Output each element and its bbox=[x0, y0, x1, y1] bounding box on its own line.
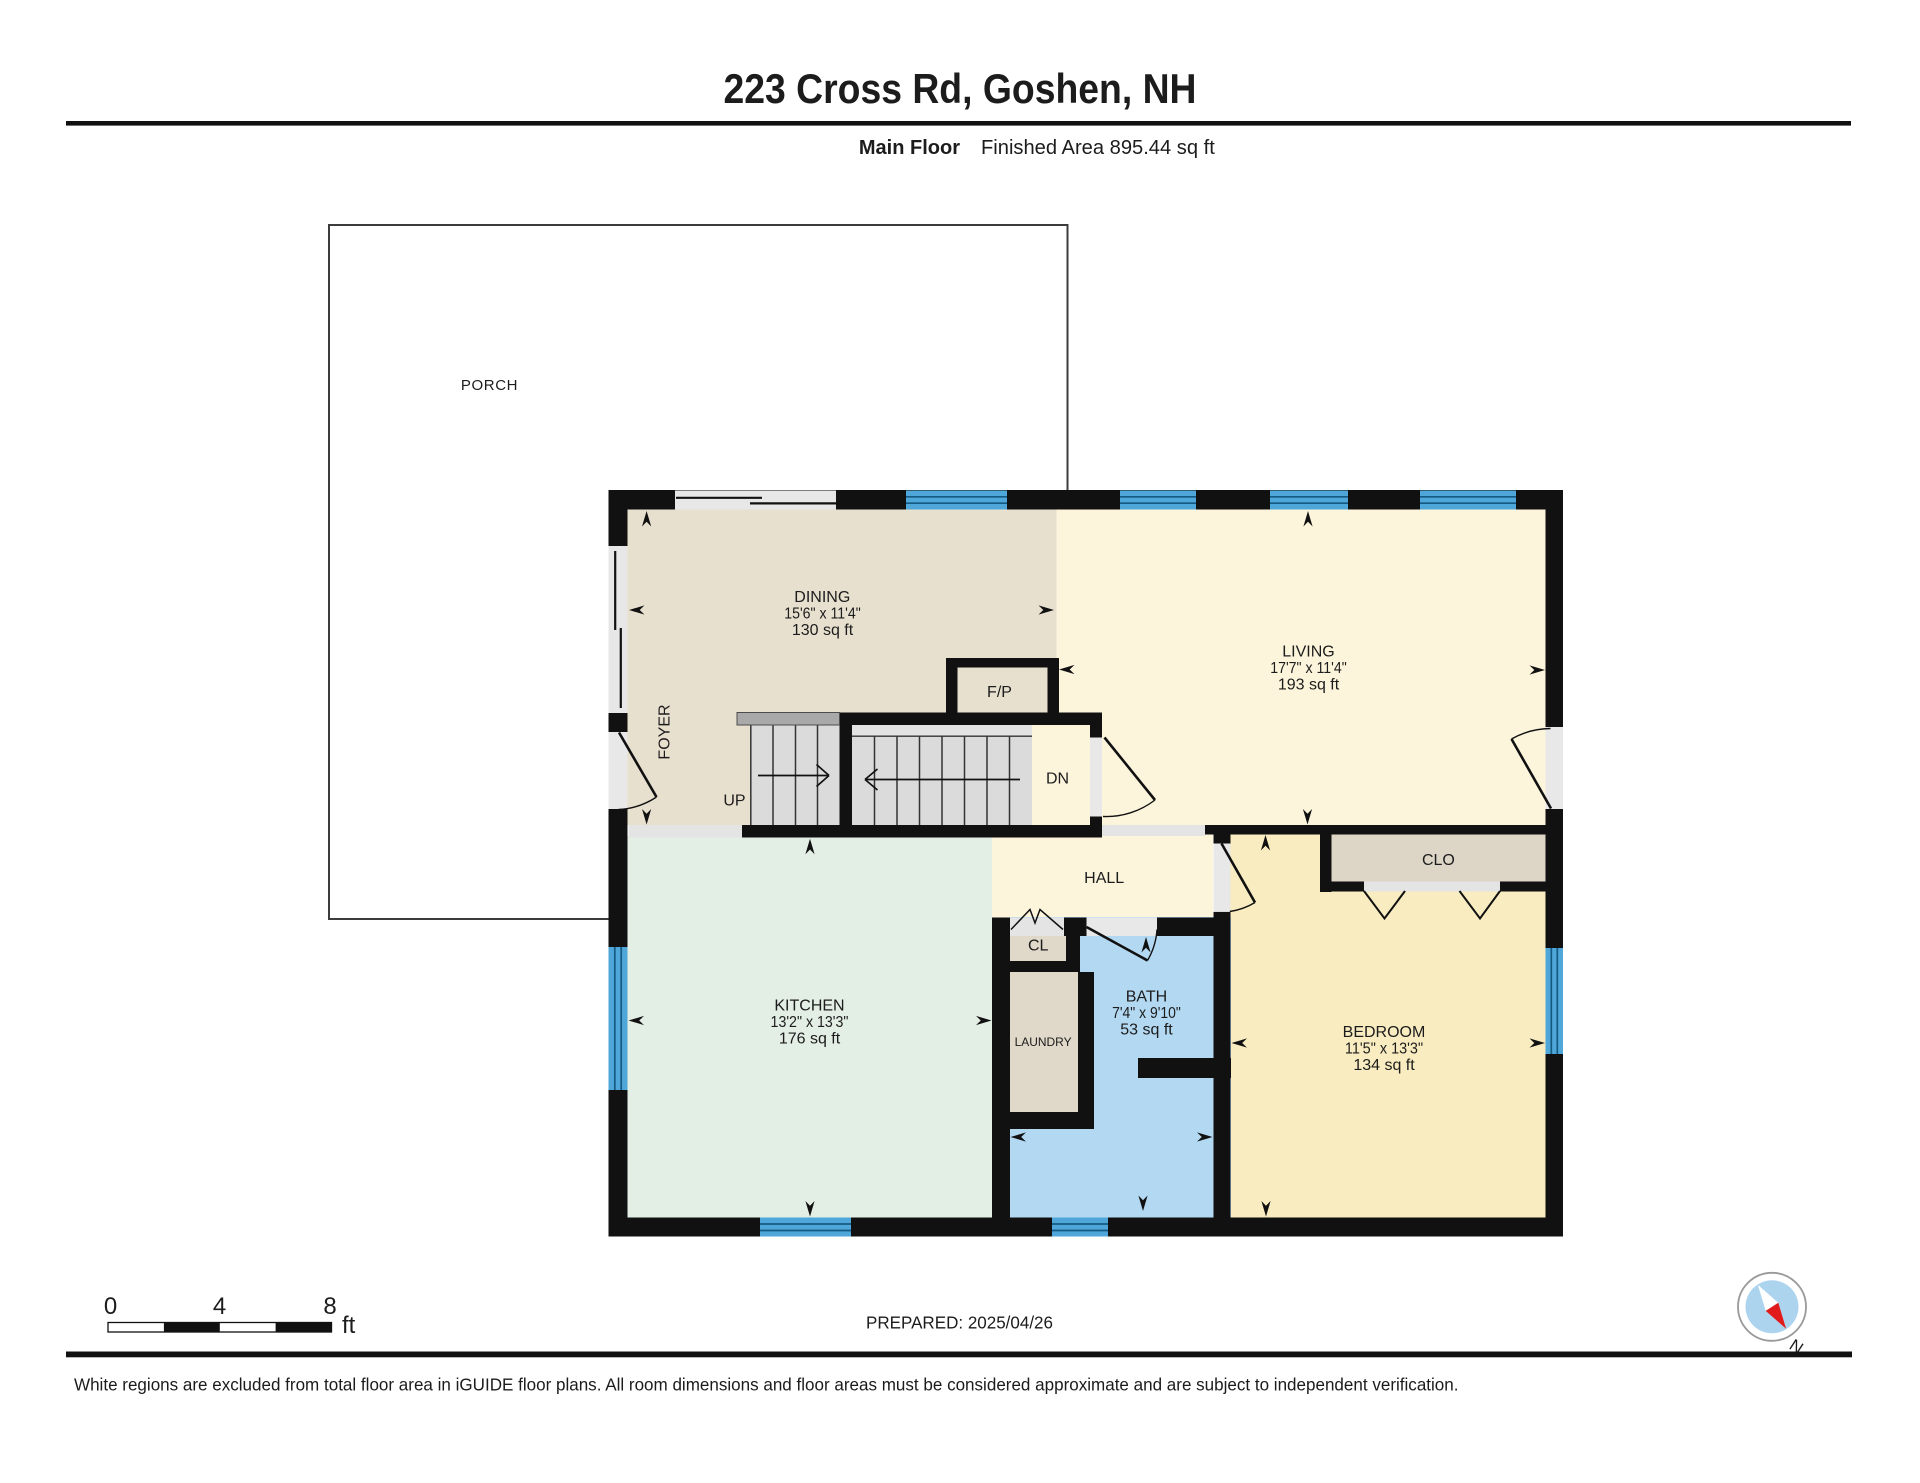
svg-text:223 Cross Rd, Goshen, NH: 223 Cross Rd, Goshen, NH bbox=[724, 65, 1197, 112]
svg-text:UP: UP bbox=[723, 793, 745, 810]
svg-text:53 sq ft: 53 sq ft bbox=[1120, 1022, 1173, 1039]
svg-text:BEDROOM: BEDROOM bbox=[1343, 1024, 1426, 1041]
svg-text:BATH: BATH bbox=[1126, 989, 1167, 1006]
svg-text:11'5" x 13'3": 11'5" x 13'3" bbox=[1345, 1041, 1423, 1058]
svg-text:134 sq ft: 134 sq ft bbox=[1353, 1057, 1415, 1074]
svg-text:LAUNDRY: LAUNDRY bbox=[1015, 1035, 1072, 1049]
svg-text:PORCH: PORCH bbox=[461, 377, 518, 394]
svg-text:4: 4 bbox=[213, 1293, 226, 1320]
svg-text:193 sq ft: 193 sq ft bbox=[1278, 677, 1340, 694]
svg-text:PREPARED: 2025/04/26: PREPARED: 2025/04/26 bbox=[866, 1313, 1053, 1333]
svg-text:8: 8 bbox=[323, 1293, 336, 1320]
svg-text:CLO: CLO bbox=[1422, 852, 1455, 869]
svg-text:15'6" x 11'4": 15'6" x 11'4" bbox=[784, 606, 861, 623]
svg-text:7'4" x 9'10": 7'4" x 9'10" bbox=[1112, 1005, 1181, 1022]
svg-text:Finished Area 895.44 sq ft: Finished Area 895.44 sq ft bbox=[981, 137, 1215, 159]
svg-text:Main Floor: Main Floor bbox=[859, 137, 960, 159]
svg-text:F/P: F/P bbox=[987, 684, 1012, 701]
svg-text:KITCHEN: KITCHEN bbox=[774, 998, 844, 1015]
svg-text:0: 0 bbox=[104, 1293, 117, 1320]
svg-text:FOYER: FOYER bbox=[657, 704, 674, 759]
svg-text:17'7" x 11'4": 17'7" x 11'4" bbox=[1270, 660, 1347, 677]
svg-text:176 sq ft: 176 sq ft bbox=[779, 1031, 841, 1048]
svg-text:HALL: HALL bbox=[1084, 870, 1124, 887]
svg-text:130 sq ft: 130 sq ft bbox=[792, 622, 854, 639]
svg-text:ft: ft bbox=[342, 1312, 356, 1339]
svg-text:DINING: DINING bbox=[794, 589, 850, 606]
svg-text:13'2" x 13'3": 13'2" x 13'3" bbox=[771, 1014, 849, 1031]
svg-text:LIVING: LIVING bbox=[1282, 644, 1334, 661]
svg-text:DN: DN bbox=[1046, 771, 1069, 788]
svg-text:CL: CL bbox=[1028, 938, 1049, 955]
svg-text:White regions are excluded fro: White regions are excluded from total fl… bbox=[74, 1375, 1459, 1395]
